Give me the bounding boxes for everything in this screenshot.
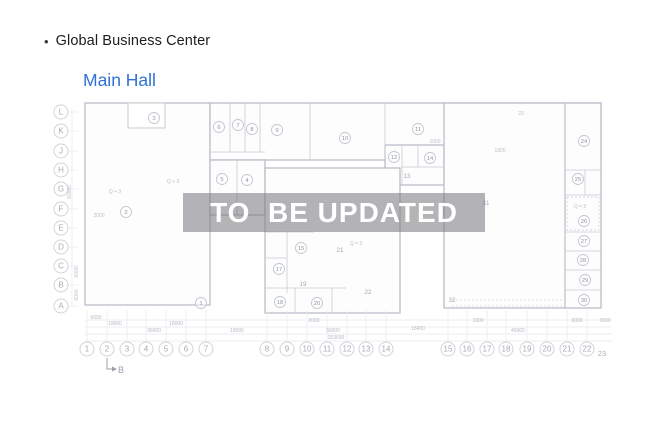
grid-row-label-B: B [58,281,63,290]
roof-notch [128,103,165,128]
room-number-30: 30 [581,298,587,304]
annotation-label: 1000 [429,139,440,145]
dimension-label: 18000 [230,328,244,334]
grid-row-label-C: C [58,262,64,271]
dimension-label: 45000 [511,328,525,334]
room-number-18: 18 [277,300,283,306]
dimension-label: 36000 [326,328,340,334]
room-number-9: 9 [275,128,278,134]
grid-col-label-13: 13 [362,345,371,354]
col-axis: 1234567891011121314151617181920212223 [80,342,606,358]
annotation-label: 23 [518,111,524,117]
annotation-label: 60000 [67,185,73,199]
grid-col-label-14: 14 [382,345,391,354]
room-number-29: 29 [582,278,588,284]
grid-col-label-10: 10 [303,345,312,354]
grid-col-label-20: 20 [543,345,552,354]
room-number-7: 7 [236,123,239,129]
annotation-label: 1800 [494,148,505,154]
grid-col-label-6: 6 [184,345,189,354]
grid-row-label-G: G [58,185,64,194]
middle-block-outline [265,168,400,313]
grid-row-label-J: J [59,147,63,156]
grid-row-label-A: A [58,302,64,311]
grid-row-label-D: D [58,243,64,252]
dimension-label: 6000 [571,318,582,324]
dimension-label: 18000 [108,321,122,327]
annotation-label: 2000 [93,213,104,219]
room-number-28: 28 [580,258,586,264]
room-number-19: 19 [300,281,307,288]
annotation-label: Q = 3 [574,204,587,210]
room-number-6: 6 [217,125,220,131]
dimension-labels: 6000180001800036000180002000360001536001… [90,315,610,341]
row-axis: LKJHGFEDCBA [54,105,68,313]
room-number-12: 12 [391,155,397,161]
room-number-25: 25 [575,177,581,183]
grid-col-label-22: 22 [583,345,592,354]
annotation-label: 6000 [74,289,80,300]
room-number-15: 15 [298,246,304,252]
room-number-20: 20 [314,301,320,307]
room-number-2: 2 [124,210,127,216]
grid-col-label-11: 11 [323,345,332,354]
grid-row-label-F: F [59,205,64,214]
grid-col-label-23: 23 [598,349,606,358]
dimension-label: 18400 [411,326,425,332]
annotation-label: Q + 3 [167,179,180,185]
dimension-label: 1000 [472,318,483,324]
dimension-label: 18000 [169,321,183,327]
room-number-1: 1 [199,301,202,307]
room-number-27: 27 [581,239,587,245]
grid-col-label-8: 8 [265,345,270,354]
grid-col-label-5: 5 [164,345,169,354]
dimension-label: 3000 [599,318,610,324]
room-number-5: 5 [220,177,223,183]
grid-col-label-21: 21 [563,345,572,354]
section-marker: B [107,358,124,375]
annotation-label: Q = 3 [350,241,363,247]
annotation-label: 6000 [74,266,80,277]
page: • Global Business Center Main Hall [0,0,660,440]
grid-col-label-15: 15 [444,345,453,354]
dimension-label: 2000 [308,318,319,324]
grid-col-label-7: 7 [204,345,209,354]
grid-row-label-H: H [58,166,64,175]
room-number-11: 11 [415,127,421,133]
room-number-17: 17 [276,267,282,273]
watermark-text: TO BE UPDATED [210,197,458,229]
grid-col-label-16: 16 [463,345,472,354]
dimension-label: 6000 [90,315,101,321]
section-marker-label: B [118,365,124,375]
room-number-3: 3 [152,116,155,122]
room-number-8: 8 [250,127,253,133]
grid-row-label-L: L [59,108,64,117]
grid-col-label-12: 12 [343,345,352,354]
room-number-26: 26 [581,219,587,225]
room-number-14: 14 [427,156,434,162]
grid-col-label-18: 18 [502,345,511,354]
grid-row-label-E: E [58,224,63,233]
room-number-13: 13 [404,173,411,180]
dimension-label: 36000 [147,328,161,334]
room-number-10: 10 [342,136,348,142]
grid-col-label-19: 19 [523,345,532,354]
annotation-label: Q + 3 [109,189,122,195]
room-number-22: 22 [365,289,372,296]
room-number-21: 21 [337,247,344,254]
grid-col-label-9: 9 [285,345,290,354]
watermark-banner: TO BE UPDATED [183,193,485,232]
dimension-label: 153600 [328,335,345,341]
grid-col-label-2: 2 [105,345,110,354]
room-number-24: 24 [581,139,588,145]
grid-col-label-1: 1 [85,345,90,354]
grid-row-label-K: K [58,127,64,136]
grid-col-label-3: 3 [125,345,130,354]
grid-col-label-17: 17 [483,345,492,354]
room-number-32: 32 [449,297,456,304]
grid-col-label-4: 4 [144,345,149,354]
